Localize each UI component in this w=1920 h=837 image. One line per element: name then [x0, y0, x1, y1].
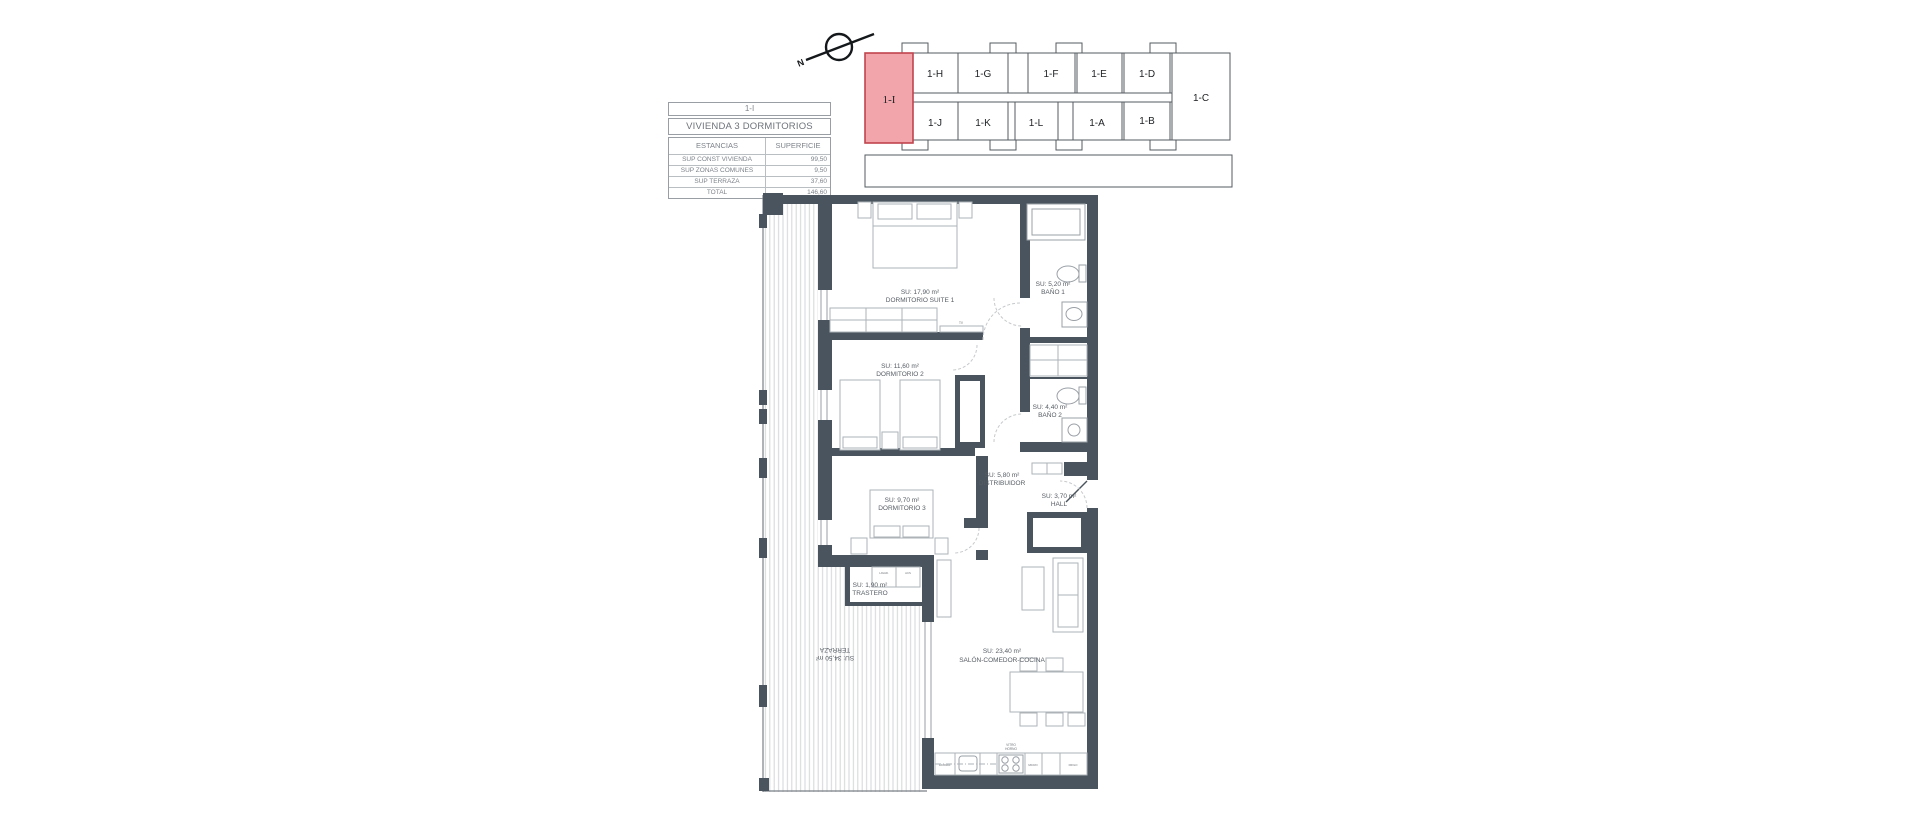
unit-label-1B: 1-B [1139, 116, 1155, 127]
row-label: SUP CONST VIVIENDA [669, 155, 766, 165]
unit-label-1E: 1-E [1091, 69, 1107, 80]
unit-label-1H: 1-H [927, 69, 943, 80]
salon-furniture [937, 558, 1085, 726]
compass-label: N [796, 57, 806, 69]
room-name: DORMITORIO SUITE 1 [886, 297, 955, 304]
room-area: SU: 1,90 m² [853, 582, 889, 589]
tv-label: TV [959, 321, 964, 325]
hall-shelf [1032, 463, 1062, 474]
room-area: SU: 23,40 m² [983, 648, 1022, 655]
room-name: TRASTERO [852, 590, 887, 597]
room-area: SU: 34,50 m² [815, 654, 854, 661]
room-area: SU: 9,70 m² [885, 497, 921, 504]
tv-shelf: TV [940, 321, 983, 332]
room-area: SU: 11,60 m² [881, 363, 920, 370]
acs-label: ACS [905, 571, 911, 575]
floor-plan: TV [750, 190, 1110, 808]
dishwasher-label: LAVAVAJ. [939, 763, 951, 767]
room-name: SALÓN-COMEDOR-COCINA [959, 655, 1045, 664]
room-name: DISTRIBUIDOR [979, 480, 1026, 487]
room-area: SU: 4,40 m² [1033, 404, 1069, 411]
bath1-fixtures [1027, 204, 1087, 327]
room-name: BAÑO 1 [1041, 287, 1065, 296]
room-area: SU: 5,80 m² [985, 472, 1021, 479]
micro-label: MICRO [1028, 763, 1038, 767]
room-name: DORMITORIO 2 [876, 371, 924, 378]
room-name: HALL [1051, 501, 1068, 508]
unit-label-1L: 1-L [1029, 118, 1044, 129]
unit-label-1I: 1-I [883, 94, 896, 106]
room-area: SU: 3,70 m² [1042, 493, 1078, 500]
hob-label-horno: HORNO [1005, 747, 1017, 751]
room-area: SU: 5,20 m² [1036, 281, 1072, 288]
unit-label-1D: 1-D [1139, 69, 1155, 80]
kitchen-counter: LAVAVAJ. VITRO HORNO MICRO FRIGO [935, 743, 1087, 775]
room-name: BAÑO 2 [1038, 410, 1062, 419]
unit-label-1J: 1-J [928, 118, 942, 129]
unit-label-1G: 1-G [975, 69, 992, 80]
keyplan-lower-block [865, 155, 1232, 187]
unit-label-1A: 1-A [1089, 118, 1105, 129]
room-name: TERRAZA [819, 646, 850, 653]
closet-between-baths [1030, 345, 1087, 376]
beds-dorm2 [840, 380, 940, 450]
key-plan: N 1-I 1-H 1-G 1-F 1-E 1-D 1-C 1-J 1-K 1-… [790, 10, 1245, 195]
bed-suite [858, 202, 972, 268]
lavad-label: LAVAD. [879, 571, 889, 575]
unit-label-1C: 1-C [1193, 93, 1209, 104]
col-header-estancias: ESTANCIAS [669, 138, 766, 154]
north-arrow-icon: N [796, 34, 874, 69]
unit-label-1F: 1-F [1044, 69, 1059, 80]
room-name: DORMITORIO 3 [878, 505, 926, 512]
row-label: SUP ZONAS COMUNES [669, 166, 766, 176]
row-label: SUP TERRAZA [669, 177, 766, 187]
room-area: SU: 17,90 m² [901, 289, 940, 296]
unit-label-1K: 1-K [975, 118, 991, 129]
fridge-label: FRIGO [1069, 763, 1079, 767]
wardrobe-suite [830, 308, 937, 332]
